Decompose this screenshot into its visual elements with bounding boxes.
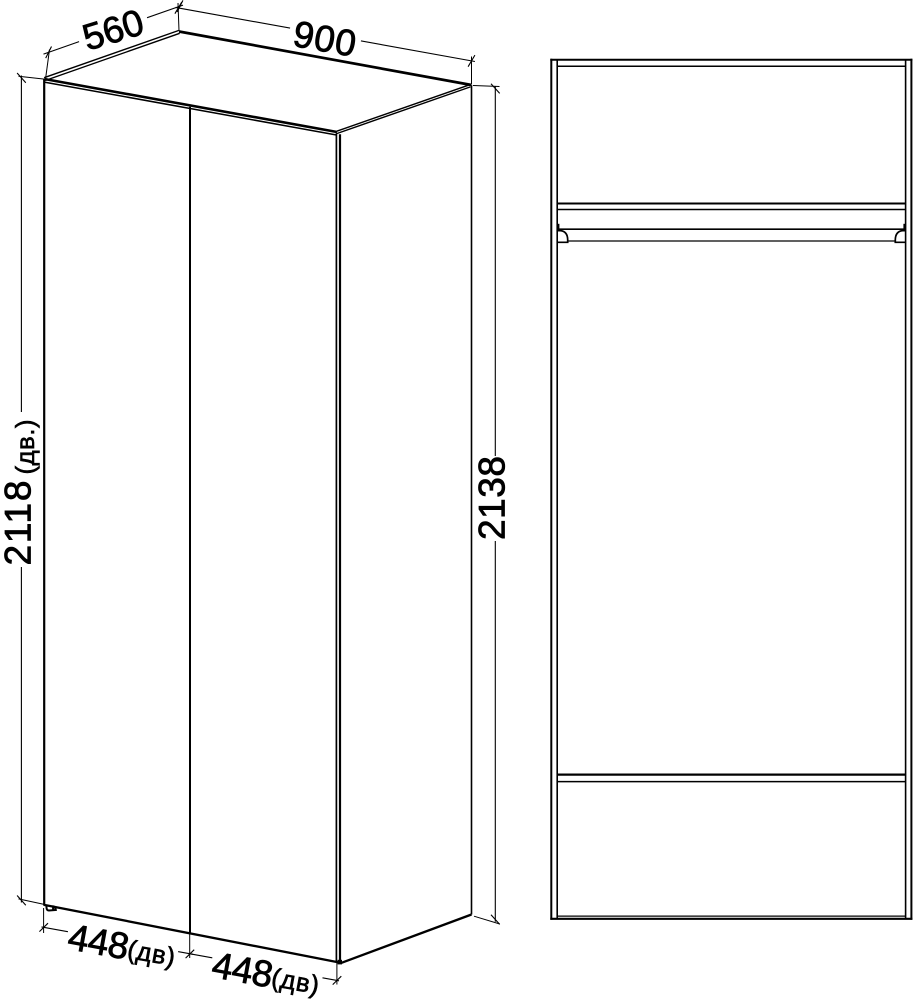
svg-text:2138: 2138 bbox=[471, 456, 512, 540]
svg-text:(дв.): (дв.) bbox=[10, 420, 40, 475]
svg-text:2118: 2118 bbox=[0, 481, 38, 566]
